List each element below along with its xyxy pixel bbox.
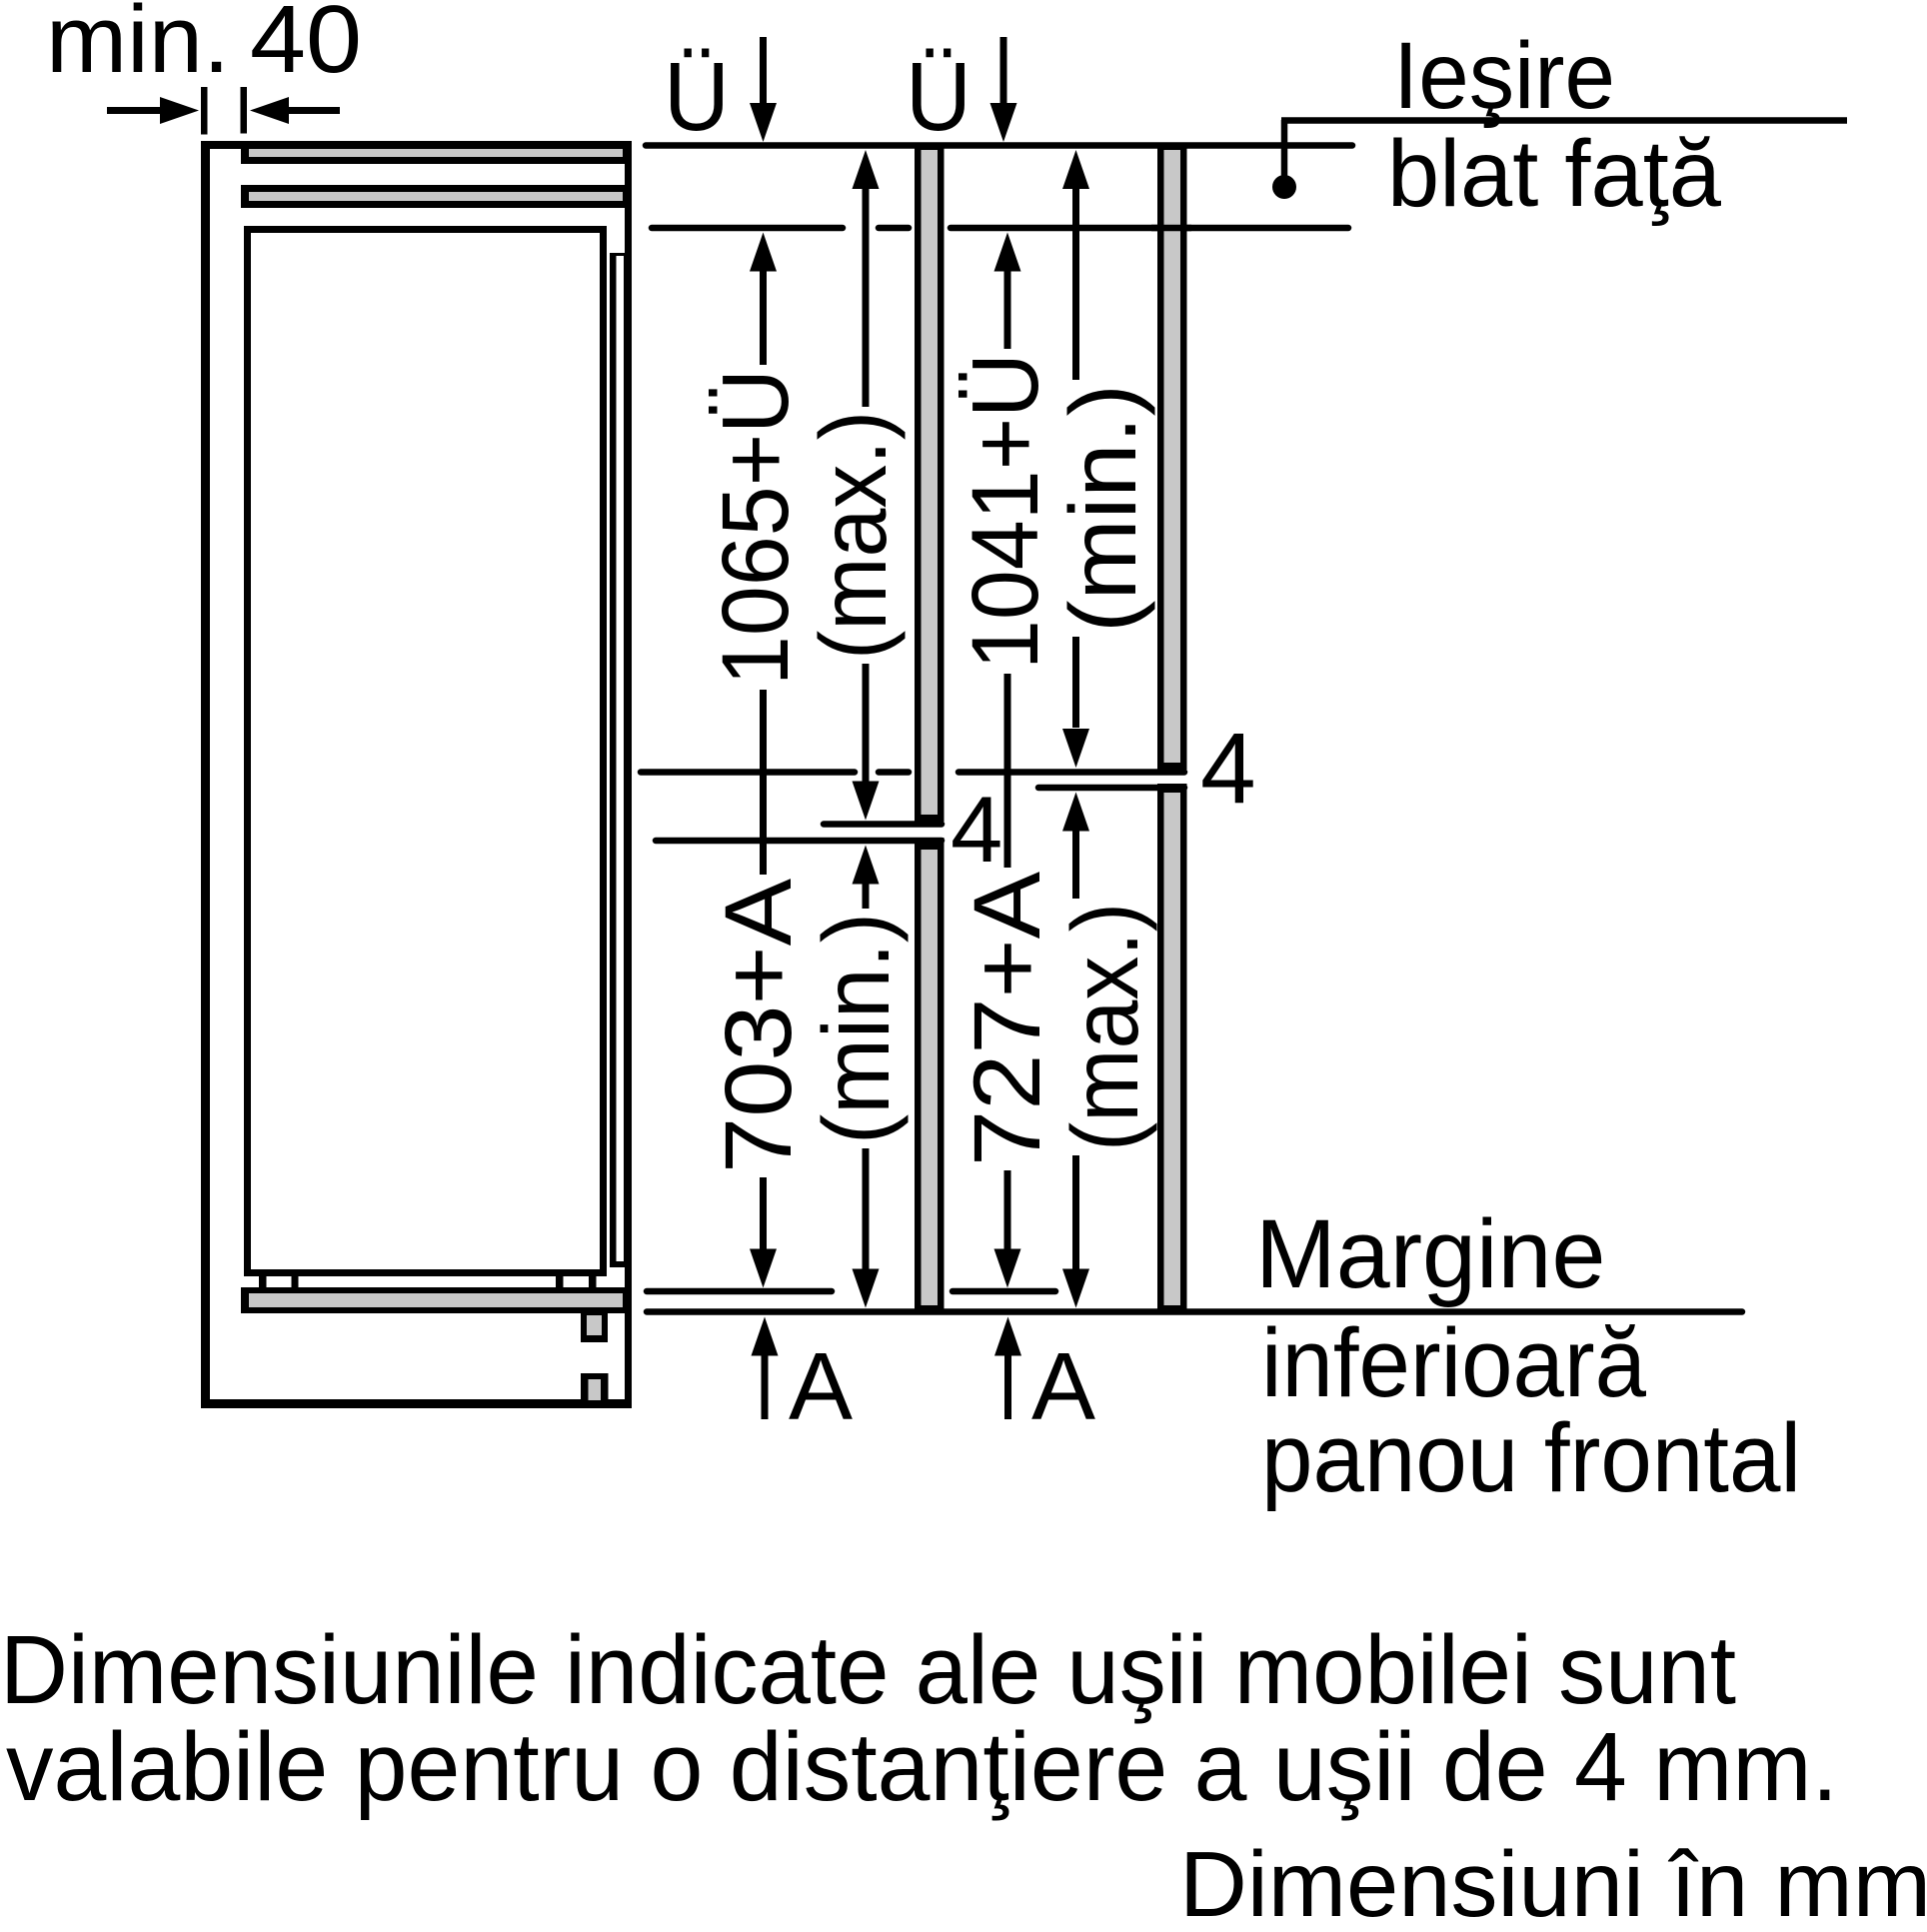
- svg-text:(max.): (max.): [801, 411, 907, 660]
- svg-text:Ieşire: Ieşire: [1393, 23, 1615, 129]
- svg-text:valabile pentru o distanţiere: valabile pentru o distanţiere a uşii de …: [6, 1712, 1838, 1821]
- svg-text:4: 4: [1200, 713, 1256, 825]
- svg-text:1041+Ü: 1041+Ü: [953, 353, 1058, 670]
- svg-text:inferioară: inferioară: [1261, 1308, 1646, 1417]
- svg-text:(min.): (min.): [804, 913, 910, 1144]
- svg-text:blat faţă: blat faţă: [1387, 121, 1721, 227]
- svg-text:A: A: [789, 1333, 853, 1440]
- svg-text:Ü: Ü: [906, 42, 971, 151]
- svg-text:(min.): (min.): [1050, 384, 1156, 633]
- svg-text:40: 40: [250, 0, 362, 93]
- svg-text:Dimensiuni în mm: Dimensiuni în mm: [1179, 1832, 1927, 1927]
- svg-text:A: A: [1031, 1333, 1095, 1440]
- svg-text:panou frontal: panou frontal: [1261, 1403, 1801, 1512]
- svg-text:4: 4: [951, 777, 1002, 882]
- svg-text:Margine: Margine: [1255, 1199, 1605, 1308]
- svg-text:Ü: Ü: [664, 42, 730, 151]
- svg-text:703+A: 703+A: [706, 878, 812, 1173]
- svg-text:Dimensiunile indicate ale uşii: Dimensiunile indicate ale uşii mobilei s…: [0, 1615, 1736, 1724]
- svg-text:min.: min.: [46, 0, 230, 93]
- svg-text:727+A: 727+A: [955, 871, 1060, 1166]
- svg-text:1065+Ü: 1065+Ü: [703, 369, 809, 686]
- svg-text:(max.): (max.): [1052, 903, 1158, 1151]
